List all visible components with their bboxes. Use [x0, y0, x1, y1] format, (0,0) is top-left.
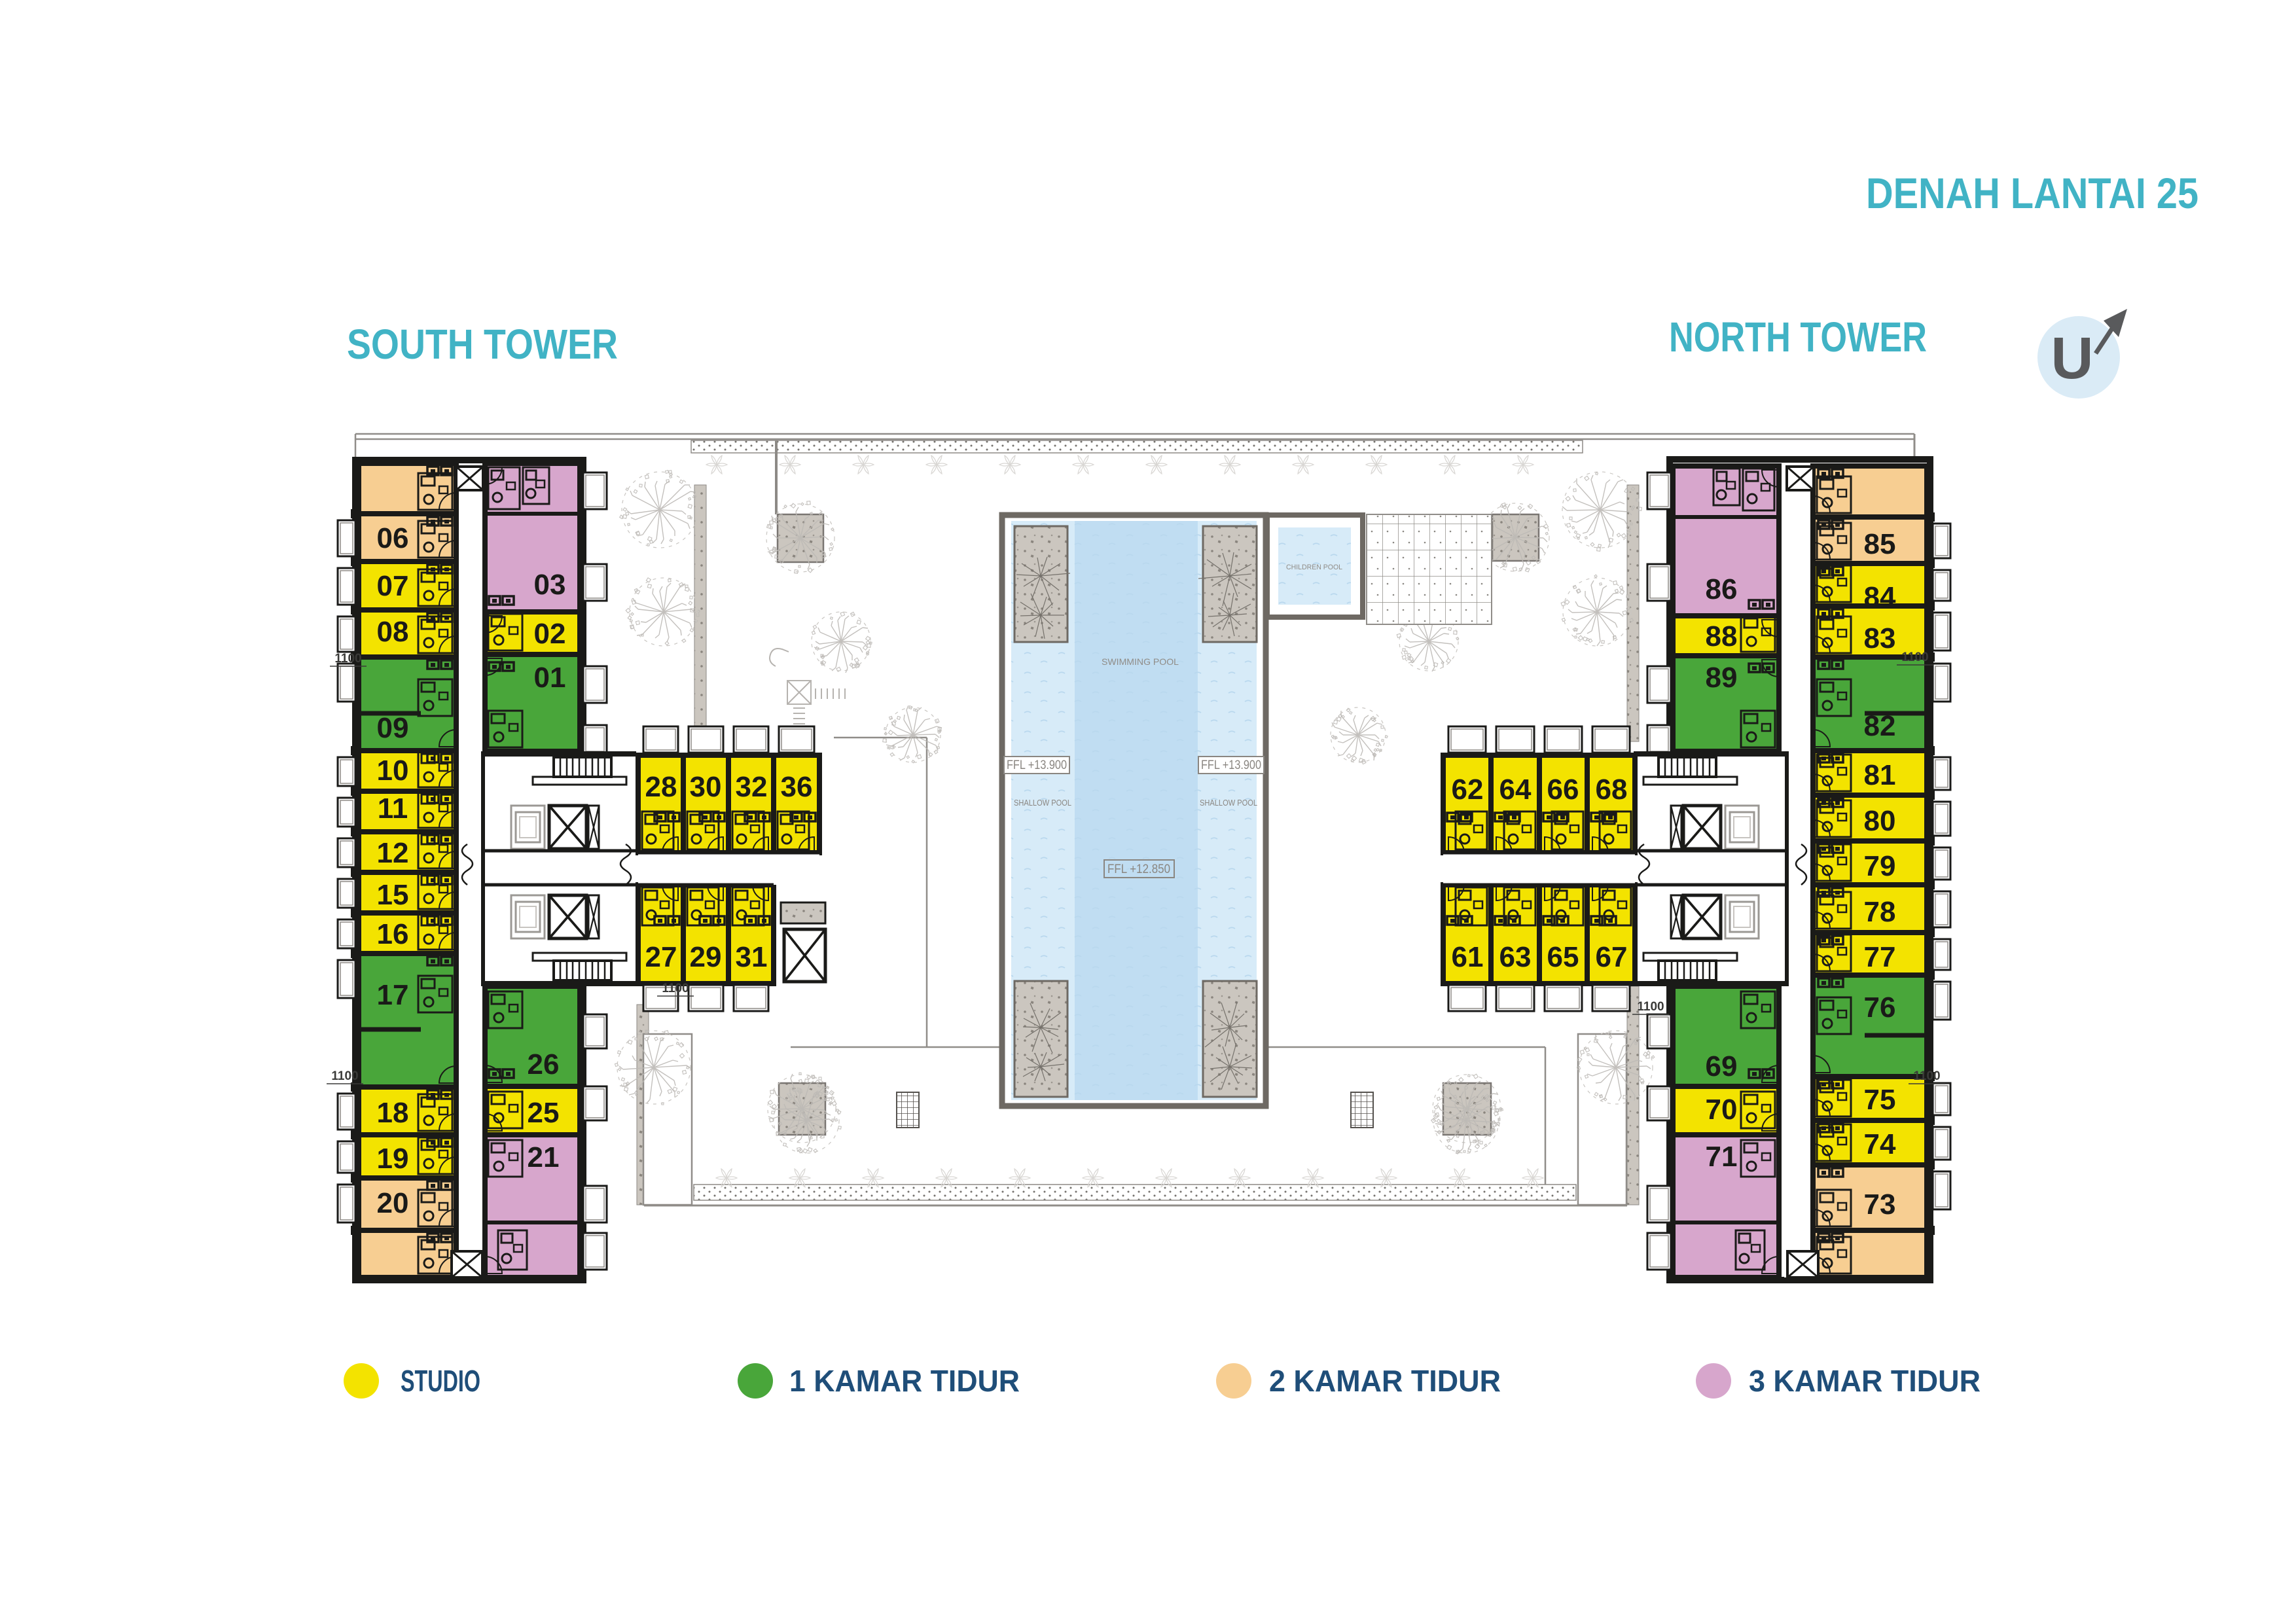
svg-text:17: 17 [377, 979, 409, 1011]
svg-text:SHALLOW POOL: SHALLOW POOL [1014, 798, 1071, 808]
svg-text:1100: 1100 [331, 1069, 358, 1083]
svg-text:NORTH TOWER: NORTH TOWER [1669, 313, 1927, 361]
svg-text:75: 75 [1864, 1084, 1896, 1116]
svg-text:65: 65 [1547, 941, 1579, 973]
svg-text:63: 63 [1499, 941, 1532, 973]
svg-text:78: 78 [1864, 896, 1896, 928]
svg-text:83: 83 [1864, 622, 1896, 654]
svg-text:73: 73 [1864, 1188, 1896, 1221]
svg-text:68: 68 [1596, 774, 1628, 806]
svg-text:88: 88 [1706, 620, 1738, 652]
svg-text:3 KAMAR TIDUR: 3 KAMAR TIDUR [1749, 1364, 1981, 1398]
svg-text:30: 30 [690, 771, 722, 803]
svg-text:08: 08 [377, 616, 409, 648]
svg-text:11: 11 [378, 793, 408, 825]
svg-text:1100: 1100 [334, 652, 361, 666]
svg-text:1100: 1100 [1637, 1000, 1664, 1014]
svg-text:80: 80 [1864, 805, 1896, 837]
svg-text:FFL +12.850: FFL +12.850 [1107, 863, 1170, 876]
svg-text:06: 06 [377, 522, 409, 554]
svg-text:09: 09 [377, 712, 409, 744]
svg-text:12: 12 [377, 837, 409, 869]
svg-text:25: 25 [528, 1097, 560, 1129]
svg-text:32: 32 [736, 771, 768, 803]
svg-text:FFL +13.900: FFL +13.900 [1007, 758, 1067, 772]
svg-text:07: 07 [377, 570, 409, 602]
svg-text:70: 70 [1706, 1094, 1738, 1126]
svg-text:STUDIO: STUDIO [401, 1364, 480, 1398]
svg-text:61: 61 [1452, 941, 1484, 973]
svg-text:31: 31 [736, 941, 768, 973]
svg-text:29: 29 [690, 941, 722, 973]
svg-text:SOUTH TOWER: SOUTH TOWER [347, 321, 618, 368]
svg-text:66: 66 [1547, 774, 1579, 806]
svg-text:16: 16 [377, 918, 409, 950]
svg-text:10: 10 [377, 755, 409, 787]
svg-text:1100: 1100 [1913, 1069, 1940, 1083]
svg-text:71: 71 [1706, 1141, 1738, 1173]
svg-text:SHALLOW POOL: SHALLOW POOL [1200, 798, 1257, 808]
svg-text:81: 81 [1864, 759, 1896, 791]
svg-text:28: 28 [645, 771, 677, 803]
svg-text:15: 15 [377, 879, 409, 911]
svg-text:27: 27 [645, 941, 677, 973]
svg-text:03: 03 [534, 569, 566, 601]
svg-text:36: 36 [781, 771, 813, 803]
svg-text:89: 89 [1706, 662, 1738, 694]
svg-text:67: 67 [1596, 941, 1628, 973]
svg-text:1 KAMAR TIDUR: 1 KAMAR TIDUR [789, 1364, 1020, 1398]
svg-text:74: 74 [1864, 1128, 1896, 1160]
svg-text:76: 76 [1864, 991, 1896, 1024]
svg-text:21: 21 [528, 1141, 560, 1173]
svg-text:SWIMMING POOL: SWIMMING POOL [1102, 656, 1179, 667]
svg-text:FFL +13.900: FFL +13.900 [1201, 758, 1261, 772]
svg-text:01: 01 [534, 662, 566, 694]
svg-text:02: 02 [534, 618, 566, 650]
svg-text:U: U [2051, 326, 2094, 391]
svg-text:77: 77 [1864, 941, 1896, 973]
svg-text:86: 86 [1706, 573, 1738, 605]
svg-text:79: 79 [1864, 850, 1896, 882]
svg-text:1100: 1100 [1901, 651, 1928, 664]
svg-text:69: 69 [1706, 1050, 1738, 1082]
svg-text:19: 19 [377, 1143, 409, 1175]
svg-text:1100: 1100 [662, 982, 689, 995]
svg-text:85: 85 [1864, 528, 1896, 560]
svg-text:20: 20 [377, 1187, 409, 1219]
svg-text:26: 26 [528, 1048, 560, 1080]
svg-text:DENAH LANTAI 25: DENAH LANTAI 25 [1866, 169, 2198, 217]
svg-text:64: 64 [1499, 774, 1532, 806]
svg-text:2 KAMAR TIDUR: 2 KAMAR TIDUR [1269, 1364, 1501, 1398]
svg-text:18: 18 [377, 1097, 409, 1129]
svg-text:62: 62 [1452, 774, 1484, 806]
svg-text:CHILDREN POOL: CHILDREN POOL [1286, 563, 1342, 571]
